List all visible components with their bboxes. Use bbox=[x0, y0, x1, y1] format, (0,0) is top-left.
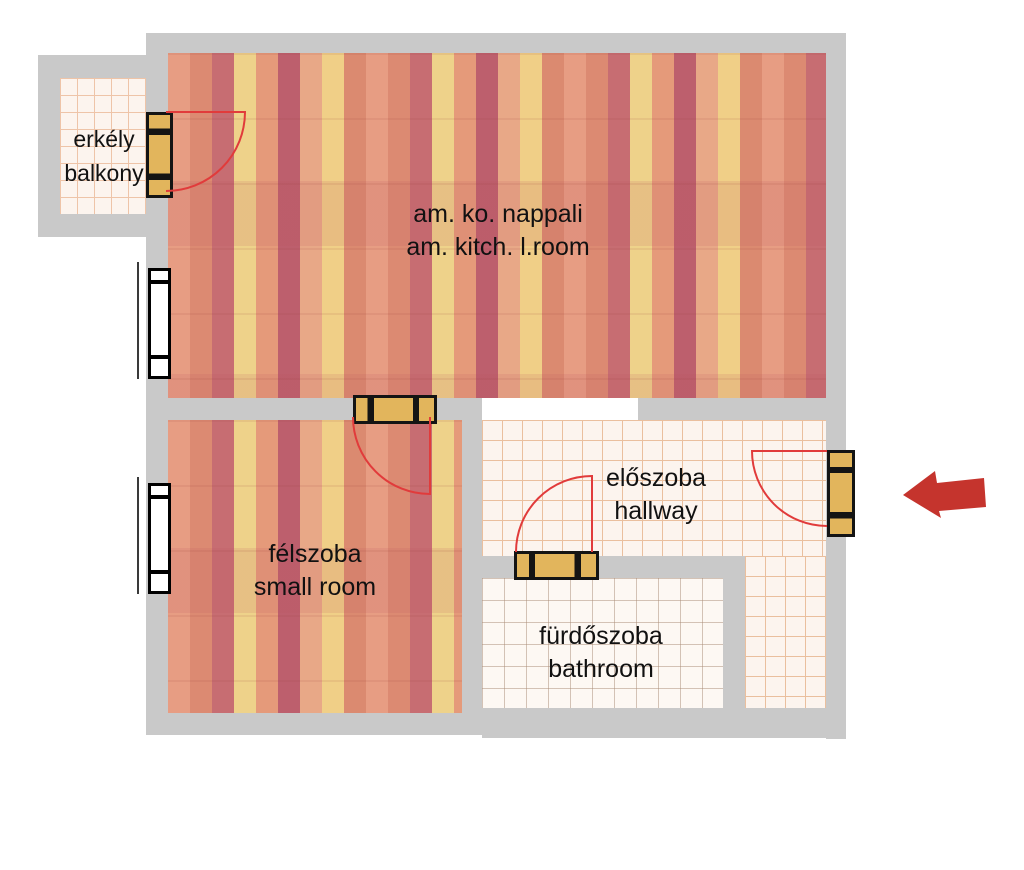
entrance-arrow-left-icon bbox=[903, 471, 986, 518]
bathroom-label-hu: fürdőszoba bbox=[481, 620, 721, 653]
room-door-swing-arc bbox=[353, 417, 430, 494]
hallway-label-hu: előszoba bbox=[556, 462, 756, 495]
room-label-balcony: erkély balkony bbox=[34, 122, 174, 190]
small-room-label-hu: félszoba bbox=[190, 538, 440, 571]
balcony-door-swing-arc bbox=[166, 112, 245, 191]
balcony-label-hu: erkély bbox=[34, 122, 174, 156]
living-label-hu: am. ko. nappali bbox=[348, 198, 648, 231]
room-label-bathroom: fürdőszoba bathroom bbox=[481, 620, 721, 686]
entrance-door-swing-arc bbox=[752, 451, 827, 526]
room-label-living: am. ko. nappali am. kitch. l.room bbox=[348, 198, 648, 264]
hallway-label-en: hallway bbox=[556, 495, 756, 528]
small-room-label-en: small room bbox=[190, 571, 440, 604]
living-label-en: am. kitch. l.room bbox=[348, 231, 648, 264]
balcony-label-en: balkony bbox=[34, 156, 174, 190]
floorplan-canvas: erkély balkony am. ko. nappali am. kitch… bbox=[0, 0, 1024, 870]
room-label-hallway: előszoba hallway bbox=[556, 462, 756, 528]
bathroom-label-en: bathroom bbox=[481, 653, 721, 686]
room-label-small-room: félszoba small room bbox=[190, 538, 440, 604]
